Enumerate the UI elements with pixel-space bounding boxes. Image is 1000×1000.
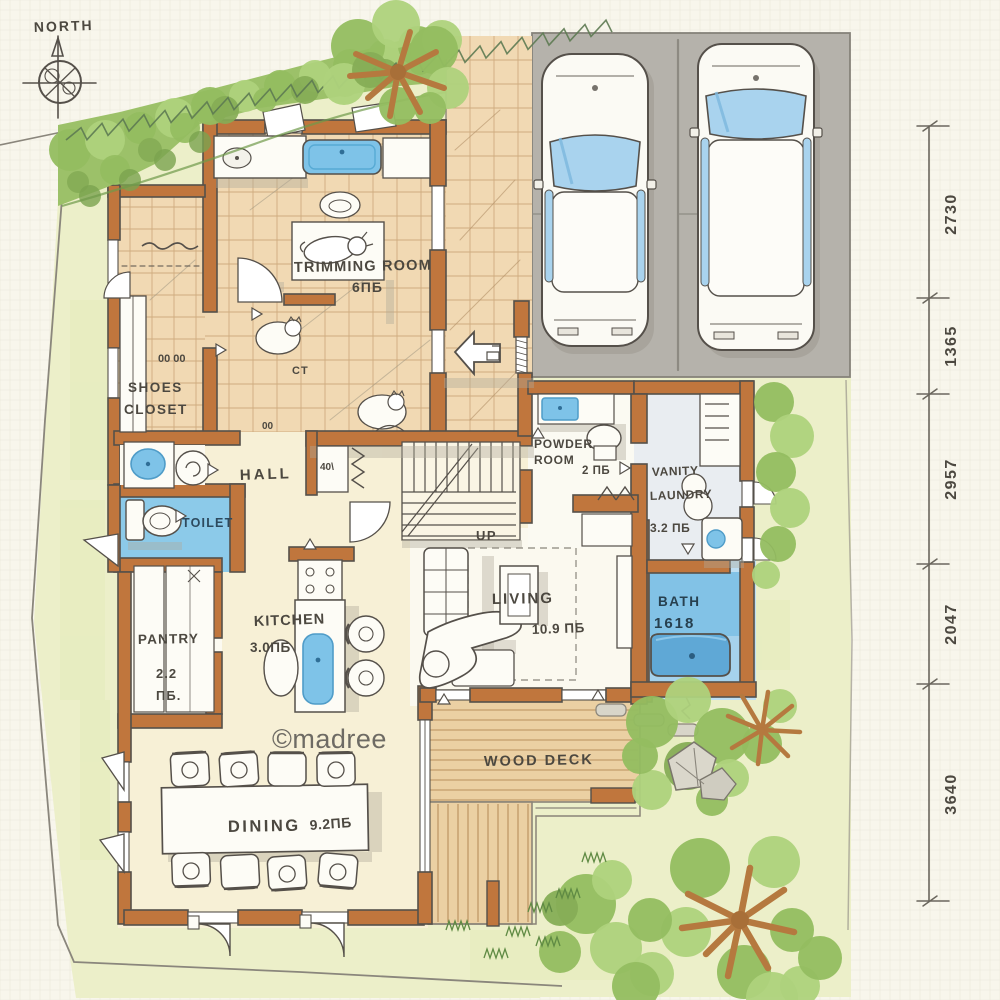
svg-text:BATH: BATH [658,594,701,609]
svg-text:SHOES: SHOES [128,380,183,395]
svg-text:10.9 ПБ: 10.9 ПБ [532,620,585,637]
svg-text:POWDER: POWDER [534,437,593,451]
svg-text:00: 00 [262,421,274,432]
svg-text:HALL: HALL [240,465,293,484]
svg-text:3.0ПБ: 3.0ПБ [250,640,291,655]
svg-text:6ПБ: 6ПБ [352,279,383,295]
svg-text:VANITY: VANITY [652,463,699,479]
svg-text:CLOSET: CLOSET [124,402,188,417]
svg-text:2.2: 2.2 [156,666,177,681]
svg-text:PANTRY: PANTRY [138,631,199,647]
svg-text:LAUNDRY: LAUNDRY [650,487,713,503]
svg-text:ROOM: ROOM [534,453,575,467]
svg-text:UP: UP [476,528,497,543]
svg-text:2957: 2957 [943,458,960,500]
svg-text:KITCHEN: KITCHEN [254,612,326,630]
svg-text:ПБ.: ПБ. [156,688,181,703]
svg-text:1365: 1365 [943,325,960,367]
svg-text:WOOD DECK: WOOD DECK [484,752,594,770]
svg-text:TRIMMING ROOM: TRIMMING ROOM [294,258,432,276]
svg-text:00 00: 00 00 [158,353,186,365]
svg-text:DINING: DINING [228,817,301,836]
svg-text:2047: 2047 [943,603,960,645]
svg-text:LIVING: LIVING [492,590,554,608]
svg-text:3640: 3640 [943,773,960,815]
svg-text:CT: CT [292,365,309,377]
svg-text:NORTH: NORTH [34,17,94,35]
svg-text:9.2ПБ: 9.2ПБ [309,814,352,833]
svg-text:40\: 40\ [320,462,334,473]
svg-text:1618: 1618 [654,615,695,632]
svg-text:2 ПБ: 2 ПБ [582,465,610,477]
svg-text:TOILET: TOILET [182,516,233,530]
svg-text:3.2 ПБ: 3.2 ПБ [650,521,690,535]
svg-text:©madree: ©madree [272,724,387,754]
svg-text:2730: 2730 [943,193,960,235]
